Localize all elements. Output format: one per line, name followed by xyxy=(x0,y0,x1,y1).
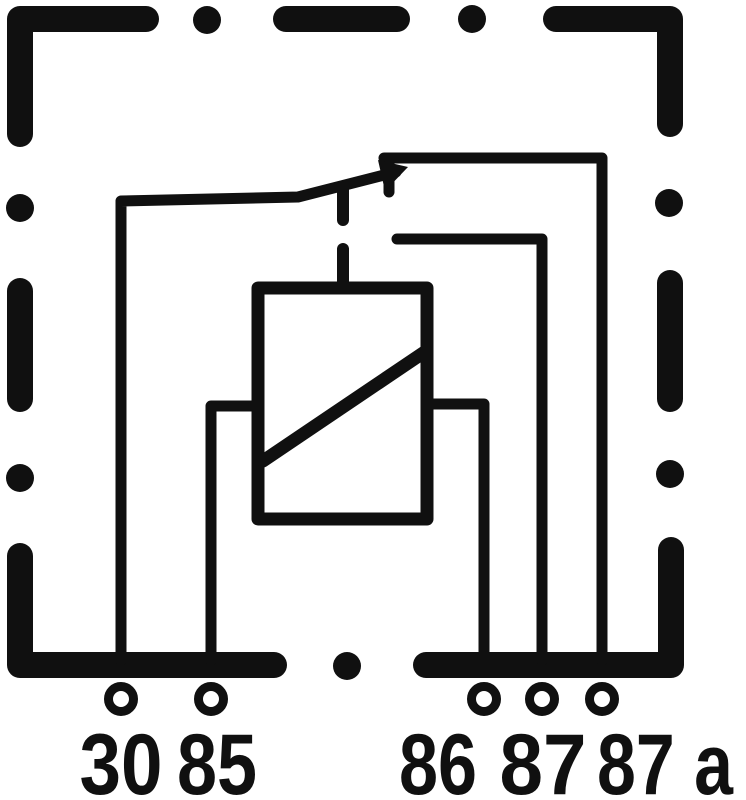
diagram-background xyxy=(0,0,746,800)
housing-dot-top-1 xyxy=(193,6,221,34)
pin-ring-30 xyxy=(109,687,134,712)
pin-ring-87 xyxy=(530,687,555,712)
terminal-label-30: 30 xyxy=(80,717,163,800)
housing-dot-bottom xyxy=(333,652,361,680)
terminal-label-87a: 87 a xyxy=(597,717,734,800)
pin-ring-85 xyxy=(199,687,224,712)
relay-schematic-canvas: 30 85 86 87 87 a xyxy=(0,0,746,800)
housing-dot-left-2 xyxy=(6,464,34,492)
pin-ring-87a xyxy=(590,687,615,712)
pin-ring-86 xyxy=(472,687,497,712)
terminal-labels: 30 85 86 87 87 a xyxy=(80,717,734,800)
housing-dot-top-2 xyxy=(458,5,486,33)
terminal-label-87: 87 xyxy=(500,717,587,800)
terminal-label-86: 86 xyxy=(399,717,477,800)
housing-dot-right-1 xyxy=(655,189,683,217)
relay-wiring-diagram: 30 85 86 87 87 a xyxy=(0,0,746,800)
housing-dot-right-2 xyxy=(656,460,684,488)
housing-dot-left-1 xyxy=(6,194,34,222)
terminal-label-85: 85 xyxy=(177,717,257,800)
